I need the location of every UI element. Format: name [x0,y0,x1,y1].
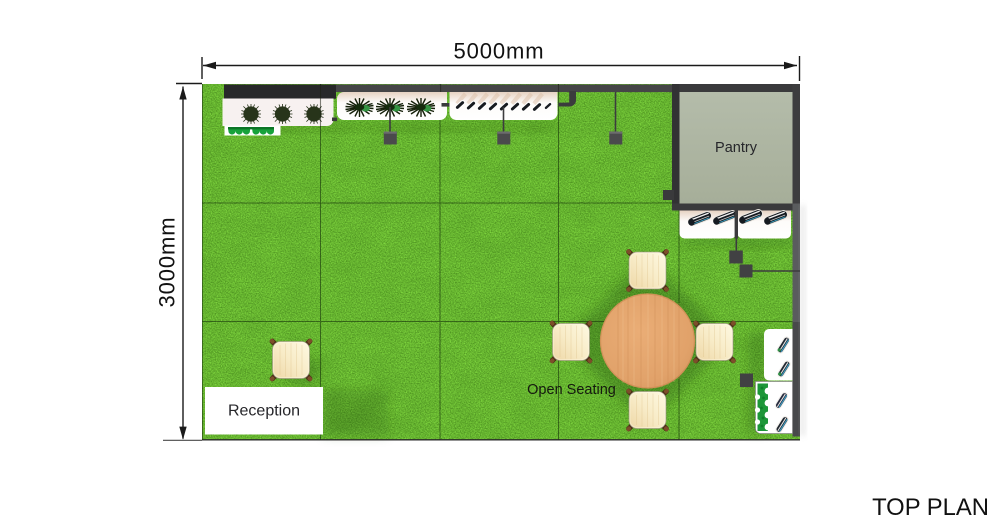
svg-text:TOP PLAN: TOP PLAN [872,494,989,521]
svg-text:5000mm: 5000mm [454,39,545,64]
svg-text:3000mm: 3000mm [155,217,180,308]
svg-text:Reception: Reception [228,403,300,420]
svg-text:Open Seating: Open Seating [527,382,616,398]
svg-text:Pantry: Pantry [715,140,758,156]
